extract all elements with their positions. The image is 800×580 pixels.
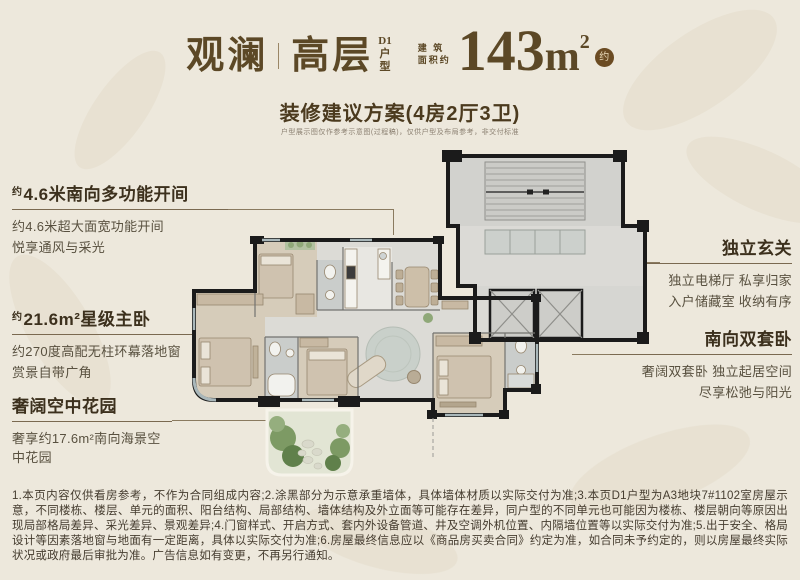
- product-type: 高层: [291, 37, 373, 75]
- approx-badge: 约: [595, 48, 614, 67]
- annotation-sky-garden: 奢阔空中花园 奢享约17.6m²南向海景空中花园: [12, 398, 172, 468]
- approx-prefix: 约: [12, 187, 23, 198]
- area-number: 143: [458, 26, 545, 75]
- annotation-title-text: 4.6米南向多功能开间: [24, 185, 189, 204]
- sky-garden: [267, 410, 352, 475]
- annotation-line: 奢享约17.6m²南向海景空中花园: [12, 430, 172, 468]
- dining-table: [405, 267, 429, 307]
- unit-line: 户: [380, 48, 391, 61]
- subtitle-caption: 户型展示图仅作参考示意图(过程稿)，仅供户型及布局参考，非交付标准: [0, 127, 800, 137]
- annotation-title-text: 21.6m²星级主卧: [24, 310, 151, 329]
- area-prefix-line: 面积约: [418, 54, 451, 66]
- unit-line: D1: [378, 35, 391, 48]
- area-prefix-line: 建 筑: [418, 42, 451, 54]
- area-value: 143 m 2: [458, 26, 590, 75]
- annotation-title-text: 奢阔空中花园: [12, 397, 117, 416]
- header: 观澜 高层 D1 户 型 建 筑 面积约 143 m 2 约: [0, 26, 800, 75]
- area-superscript: 2: [580, 34, 590, 51]
- page-subtitle: 装修建议方案(4房2厅3卫): [0, 97, 800, 126]
- annotation-title-text: 独立玄关: [722, 239, 792, 258]
- approx-prefix: 约: [12, 312, 23, 323]
- area-prefix: 建 筑 面积约: [418, 42, 451, 66]
- annotation-title-text: 南向双套卧: [705, 330, 793, 349]
- stairwell: [485, 162, 585, 220]
- unit-line: 型: [380, 61, 391, 74]
- area-unit: m: [545, 40, 580, 76]
- project-name: 观澜: [186, 37, 268, 75]
- floor-plan: [190, 148, 650, 493]
- unit-type-label: D1 户 型: [378, 35, 391, 73]
- legal-disclaimer: 1.本页内容仅供看房参考，不作为合同组成内容;2.涂黑部分为示意承重墙体，具体墙…: [12, 489, 788, 564]
- annotation-title: 奢阔空中花园: [12, 398, 172, 422]
- title-divider: [278, 43, 279, 69]
